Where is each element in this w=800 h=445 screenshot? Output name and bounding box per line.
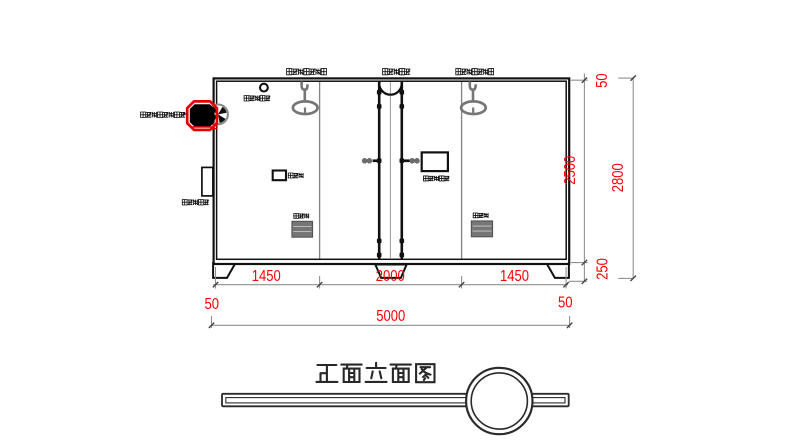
svg-text:50: 50 [594,73,611,88]
svg-text:50: 50 [558,295,573,312]
svg-text:250: 250 [594,258,611,280]
svg-text:1450: 1450 [500,268,529,285]
svg-text:50: 50 [205,296,220,313]
svg-text:5000: 5000 [376,308,405,325]
svg-text:2500: 2500 [562,156,579,185]
svg-text:1450: 1450 [252,268,281,285]
svg-text:2000: 2000 [376,268,405,285]
svg-text:2800: 2800 [610,163,627,192]
